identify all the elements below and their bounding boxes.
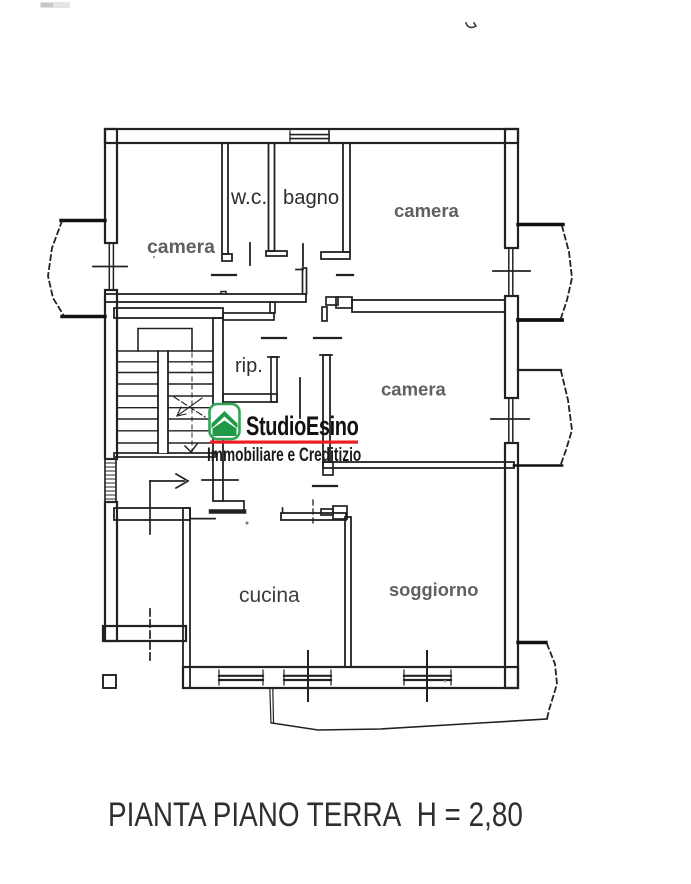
svg-text:rip.: rip. — [235, 355, 263, 377]
svg-text:cucina: cucina — [239, 584, 300, 607]
svg-text:PIANTA PIANO TERRA H = 2,80: PIANTA PIANO TERRA H = 2,80 — [108, 795, 523, 833]
svg-text:camera: camera — [147, 236, 215, 258]
svg-text:bagno: bagno — [283, 187, 339, 209]
svg-text:soggiorno: soggiorno — [389, 579, 478, 600]
svg-text:camera: camera — [381, 379, 447, 400]
svg-text:StudioEsino: StudioEsino — [246, 411, 358, 442]
svg-text:w.c.: w.c. — [230, 186, 267, 209]
svg-text:camera: camera — [394, 200, 460, 221]
svg-text:Immobiliare e Creditizio: Immobiliare e Creditizio — [207, 444, 361, 466]
